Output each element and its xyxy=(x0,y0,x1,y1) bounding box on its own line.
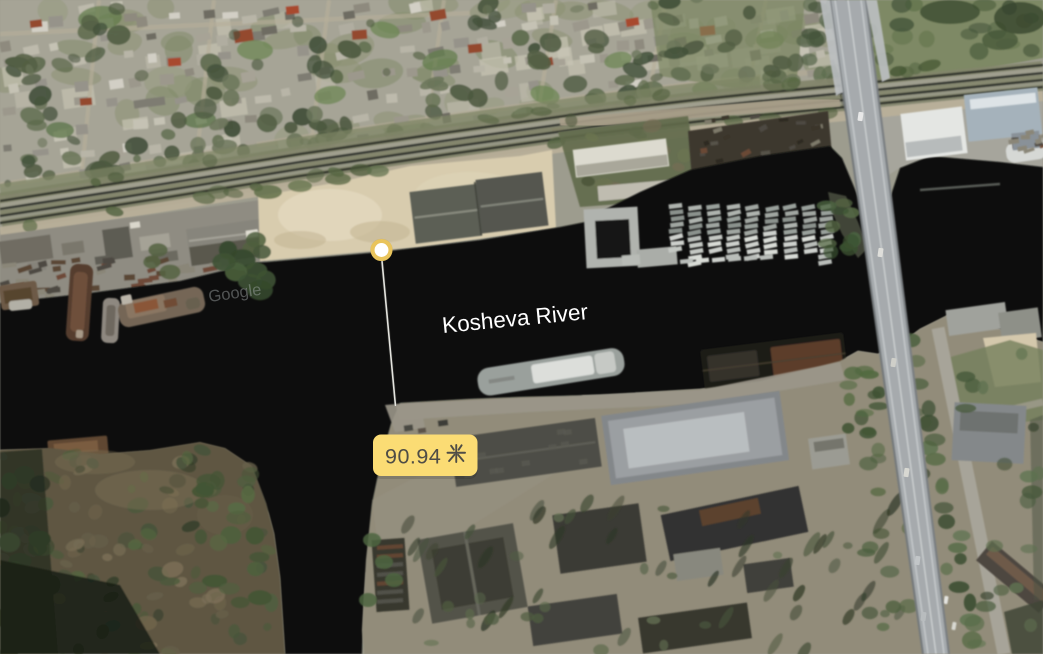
svg-text:90.94: 90.94 xyxy=(385,445,441,469)
